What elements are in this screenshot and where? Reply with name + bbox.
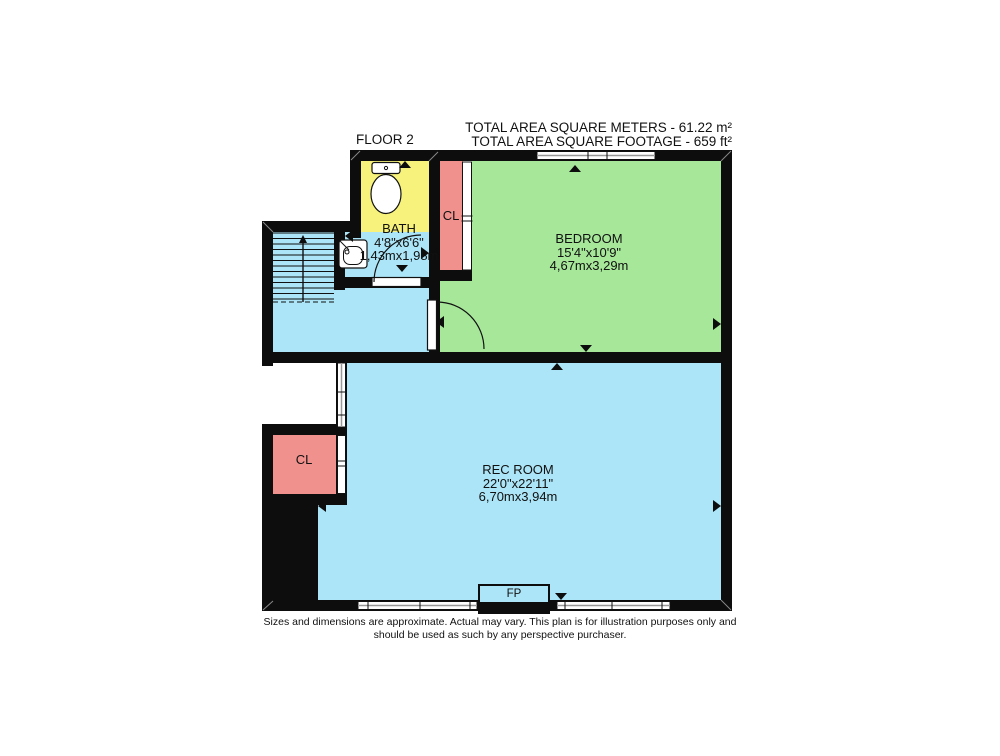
closet-top-label: CL [443,209,460,223]
wall-chimney-mass [262,500,318,611]
closet-bottom-label: CL [296,453,313,467]
bedroom-label: BEDROOM 15'4"x10'9" 4,67mx3,29m [550,232,629,273]
rec-room-label: REC ROOM 22'0"x22'11" 6,70mx3,94m [479,463,558,504]
wall-closet-bottom-top [262,424,347,435]
wall-right [721,150,732,611]
bedroom-dims-imperial: 15'4"x10'9" [550,246,629,260]
bath-dims-metric: 1,43mx1,98m [360,249,439,263]
wall-closet-bottom-right [336,424,347,505]
bedroom-name: BEDROOM [550,232,629,246]
total-area-footage: TOTAL AREA SQUARE FOOTAGE - 659 ft² [471,135,732,148]
disclaimer: Sizes and dimensions are approximate. Ac… [264,616,737,642]
wall-closet-top-bottom [429,270,472,281]
floor-plan: FLOOR 2 TOTAL AREA SQUARE METERS - 61.22… [0,0,1000,756]
rec-room-dims-metric: 6,70mx3,94m [479,490,558,504]
rec-room-area-left [318,505,347,600]
fireplace-box: FP [478,584,550,604]
disclaimer-line1: Sizes and dimensions are approximate. Ac… [264,616,737,629]
wall-left-upper [262,221,273,366]
wall-top [350,150,732,161]
bath-name: BATH [360,222,439,236]
bath-dims-imperial: 4'8"x6'6" [360,236,439,250]
floor-label: FLOOR 2 [356,133,414,146]
bedroom-dims-metric: 4,67mx3,29m [550,259,629,273]
total-area-meters: TOTAL AREA SQUARE METERS - 61.22 m² [465,121,732,134]
rec-room-dims-imperial: 22'0"x22'11" [479,477,558,491]
bath-label: BATH 4'8"x6'6" 1,43mx1,98m [360,222,439,263]
rec-room-name: REC ROOM [479,463,558,477]
bedroom-entry-area [440,281,472,352]
wall-closet-bottom-left [262,424,273,505]
wall-main-horizontal [262,352,732,363]
fireplace-label: FP [507,588,522,600]
wall-bath-bottom [334,277,440,288]
closet-top-sliding-doors-icon [462,162,473,270]
wall-rec-left [336,352,347,435]
disclaimer-line2: should be used as such by any perspectiv… [264,629,737,642]
wall-stairs-top [262,221,361,232]
